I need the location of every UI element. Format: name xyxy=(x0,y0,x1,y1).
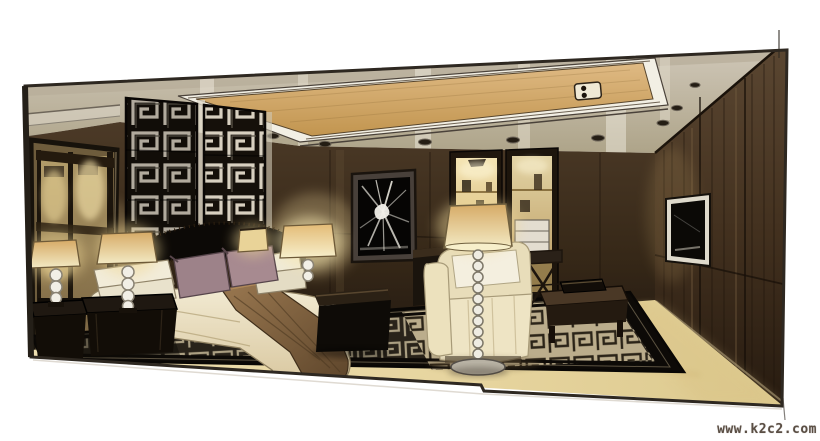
cove-light-fixture xyxy=(574,82,601,100)
foot-bench xyxy=(312,288,392,358)
wall-artwork xyxy=(352,170,416,262)
wall-tv xyxy=(666,194,710,266)
table-lamp-3 xyxy=(233,224,273,256)
nightstand-left xyxy=(30,300,88,360)
table-tray xyxy=(560,279,606,293)
interior-rendering: www.k2c2.com xyxy=(0,0,820,441)
tv-screen xyxy=(671,200,705,260)
bedroom-sketch xyxy=(0,0,820,441)
watermark: www.k2c2.com xyxy=(717,422,817,437)
